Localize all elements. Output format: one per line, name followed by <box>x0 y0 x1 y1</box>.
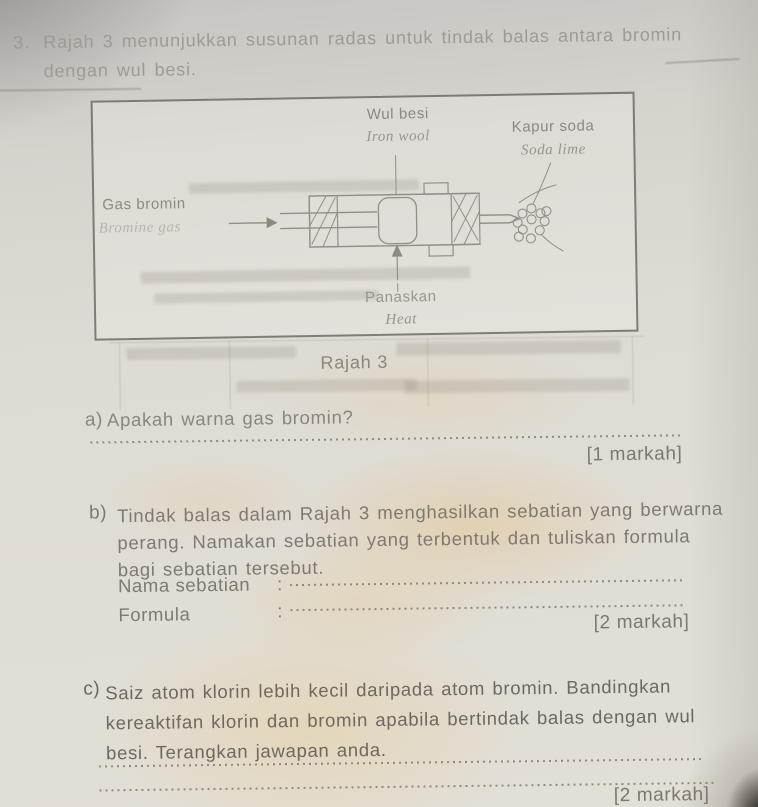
figure-caption: Rajah 3 <box>279 351 429 374</box>
answer-line <box>290 604 685 611</box>
question-a-label: a) <box>85 409 103 431</box>
question-a-text: Apakah warna gas bromin? <box>107 406 354 431</box>
question-b-text: Tindak balas dalam Rajah 3 menghasilkan … <box>117 495 724 583</box>
stray-mark <box>666 58 740 64</box>
answer-line <box>90 434 680 443</box>
question-c-marks: [2 markah] <box>5 784 710 807</box>
scanned-exam-page: 3. Rajah 3 menunjukkan susunan radas unt… <box>0 0 758 807</box>
question-c-text: Saiz atom klorin lebih kecil daripada at… <box>105 671 696 768</box>
question-b-label: b) <box>89 502 107 524</box>
gas-flow-arrow <box>230 217 278 229</box>
field-colon: : <box>277 573 282 595</box>
question-b-marks: [2 markah] <box>2 611 689 641</box>
question-number: 3. <box>13 32 30 53</box>
question-intro-line1: Rajah 3 menunjukkan susunan radas untuk … <box>43 24 682 53</box>
label-heat-en: Heat <box>336 310 466 329</box>
label-iron-wool-en: Iron wool <box>333 128 463 147</box>
soda-lime-bulb <box>513 204 552 244</box>
label-bromine-gas-en: Bromine gas <box>99 219 182 237</box>
label-soda-lime-ms: Kapur soda <box>483 117 623 136</box>
question-intro-line2: dengan wul besi. <box>44 59 197 82</box>
stray-mark <box>0 88 141 91</box>
question-a-marks: [1 markah] <box>0 443 682 473</box>
field-label-nama-sebatian: Nama sebatian <box>118 574 250 598</box>
label-soda-lime-en: Soda lime <box>483 141 623 160</box>
page-content: 3. Rajah 3 menunjukkan susunan radas unt… <box>0 0 758 807</box>
label-bromine-gas-ms: Gas bromin <box>102 195 186 213</box>
label-iron-wool-ms: Wul besi <box>333 105 463 124</box>
figure-box: Wul besi Iron wool Kapur soda Soda lime … <box>91 92 639 341</box>
question-c-label: c) <box>83 678 100 700</box>
